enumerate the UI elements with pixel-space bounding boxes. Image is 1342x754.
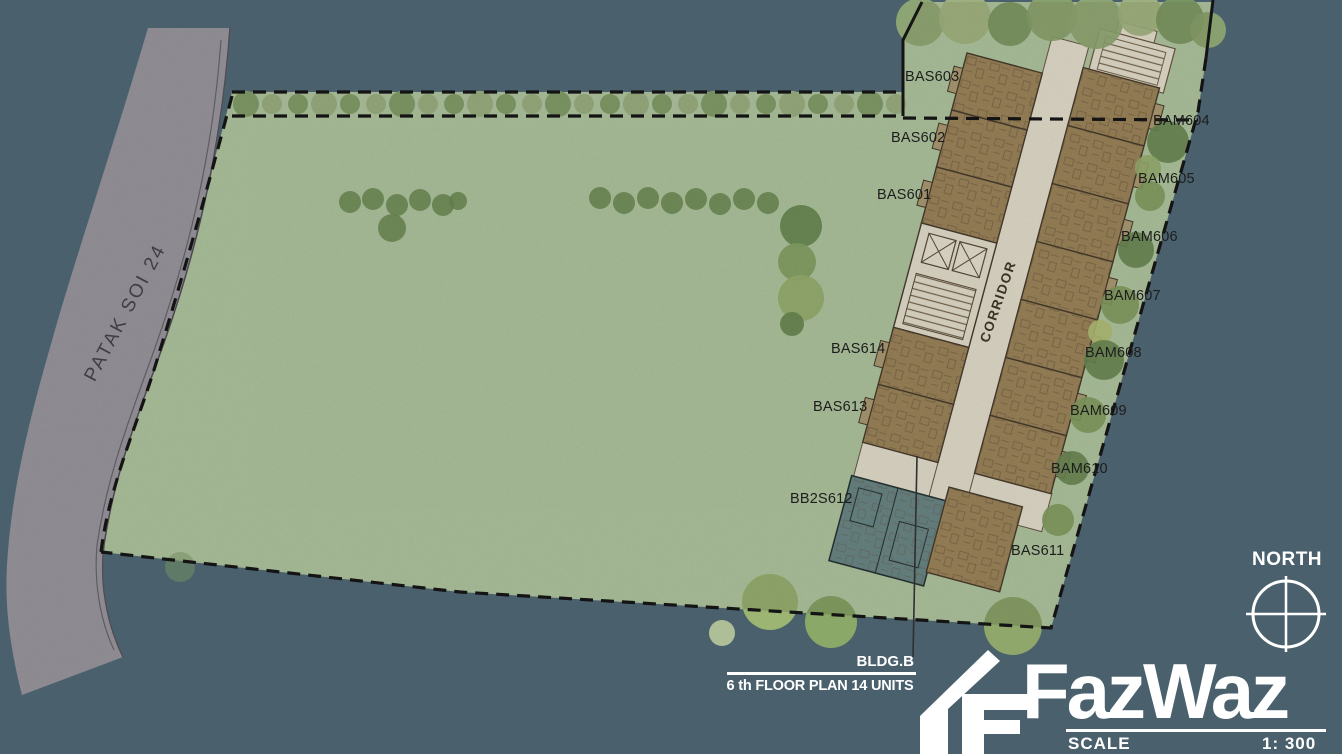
unit-label-bam604: BAM604: [1153, 113, 1210, 129]
north-label: NORTH: [1247, 549, 1327, 571]
unit-label-bas603: BAS603: [905, 69, 959, 85]
unit-label-bas611: BAS611: [1011, 543, 1064, 559]
unit-label-bb2s612: BB2S612: [790, 491, 853, 507]
unit-label-bas601: BAS601: [877, 187, 931, 203]
building-tag: BLDG.B: [826, 653, 914, 670]
unit-label-bas614: BAS614: [831, 341, 885, 357]
scale-value: 1: 300: [1262, 734, 1316, 754]
scale-label: SCALE: [1068, 734, 1131, 754]
north-compass-icon: [1246, 576, 1326, 652]
scale-rule: [1066, 729, 1326, 732]
unit-label-bam609: BAM609: [1070, 403, 1127, 419]
fazwaz-logo-text: FazWaz: [1022, 652, 1287, 730]
unit-label-bam607: BAM607: [1104, 288, 1161, 304]
unit-label-bam608: BAM608: [1085, 345, 1142, 361]
unit-label-bam605: BAM605: [1138, 171, 1195, 187]
caption-rule: [727, 672, 916, 675]
unit-label-bam606: BAM606: [1121, 229, 1178, 245]
terrain-texture: [0, 0, 1342, 754]
site-plan: PATAK SOI 24 CORRIDOR BAS603 BAS602 BAS6…: [0, 0, 1342, 754]
floor-plan-caption: 6 th FLOOR PLAN 14 UNITS: [722, 678, 918, 694]
unit-label-bam610: BAM610: [1051, 461, 1108, 477]
unit-label-bas613: BAS613: [813, 399, 867, 415]
fazwaz-house-icon: [920, 650, 1028, 754]
site-plan-drawing: [0, 0, 1342, 754]
unit-label-bas602: BAS602: [891, 130, 945, 146]
tree: [709, 620, 735, 646]
